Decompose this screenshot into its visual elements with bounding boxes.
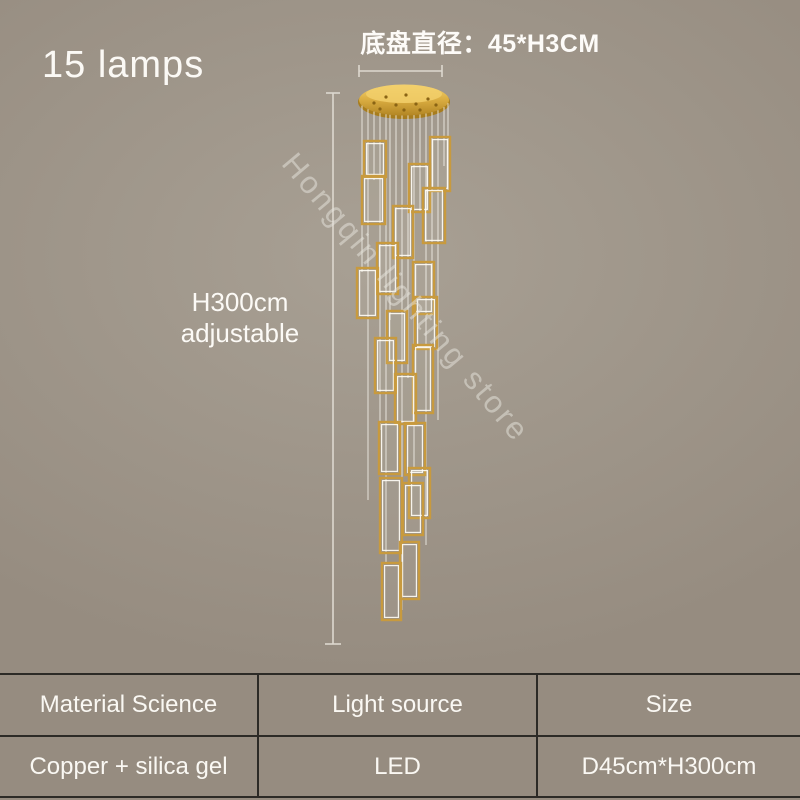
lamp-ring <box>382 563 401 620</box>
lamp-ring <box>380 478 402 553</box>
height-dimension-line <box>325 93 341 644</box>
lamp-ring <box>379 422 400 474</box>
spec-header-size: Size <box>538 675 800 737</box>
lamp-ring <box>400 542 419 599</box>
lamp-ring <box>357 268 378 318</box>
lamp-ring <box>375 338 396 393</box>
spec-value-light-source: LED <box>259 737 538 796</box>
lamp-ring <box>415 297 437 349</box>
lamp-ring <box>430 137 450 191</box>
lamp-ring <box>364 141 386 177</box>
spec-header-light-source: Light source <box>259 675 538 737</box>
lamp-ring <box>362 176 385 224</box>
lamp-ring <box>395 374 416 424</box>
lamp-ring <box>377 243 398 294</box>
lamp-count-label: 15 lamps <box>42 44 204 87</box>
ceiling-canopy <box>358 85 450 120</box>
lamp-rings <box>357 137 450 620</box>
spec-header-material: Material Science <box>0 675 259 737</box>
base-diameter-label: 底盘直径：45*H3CM <box>300 24 660 60</box>
base-diameter-dimension-line <box>359 65 442 77</box>
height-adjustable-note: adjustable <box>130 318 350 349</box>
height-value: H300cm <box>130 287 350 318</box>
spec-value-size: D45cm*H300cm <box>538 737 800 796</box>
lamp-ring <box>423 188 445 243</box>
lamp-ring <box>403 483 423 535</box>
product-image: 15 lamps 底盘直径：45*H3CM H300cm adjustable … <box>0 0 800 800</box>
spec-value-material: Copper + silica gel <box>0 737 259 796</box>
height-label: H300cm adjustable <box>130 287 350 349</box>
spec-table: Material Science Light source Size Coppe… <box>0 673 800 798</box>
